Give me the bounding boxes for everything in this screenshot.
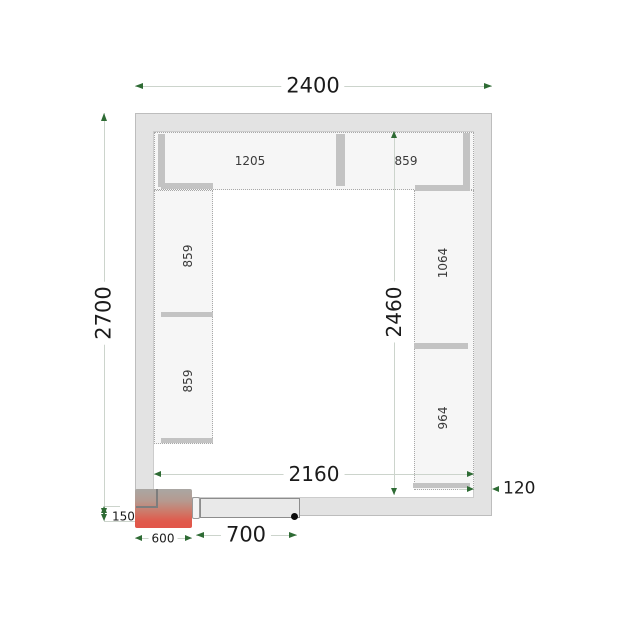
dim-arrow — [391, 131, 397, 138]
dim-label-inner-height: 2460 — [383, 282, 405, 343]
shelf-length-label: 859 — [395, 154, 418, 168]
shelf-endcap — [161, 183, 213, 189]
dim-arrow — [492, 486, 499, 492]
dim-arrow — [154, 471, 161, 477]
dim-arrow — [101, 113, 107, 121]
dim-arrow — [101, 514, 107, 521]
shelf-length-label: 859 — [181, 245, 195, 268]
shelf-top-row — [154, 132, 474, 190]
dim-arrow — [289, 532, 297, 538]
dim-line-wall-thickness — [459, 489, 467, 490]
dim-label-outer-width: 2400 — [281, 74, 344, 97]
door-frame-post — [192, 497, 200, 519]
wall-corner-line — [136, 506, 158, 508]
shelf-length-label: 964 — [436, 407, 450, 430]
shelf-length-label: 1064 — [436, 248, 450, 279]
dim-label-door-width: 700 — [221, 523, 271, 546]
dim-arrow — [467, 471, 474, 477]
shelf-length-label: 1205 — [235, 154, 266, 168]
dim-arrow — [101, 506, 107, 513]
dim-arrow — [185, 535, 192, 541]
dim-label-inner-width: 2160 — [284, 463, 345, 485]
shelf-endcap — [413, 483, 470, 488]
dim-arrow — [196, 532, 204, 538]
shelf-divider — [161, 312, 213, 317]
floor-plan-canvas: 1205 859 859 859 1064 964 2400 2700 2460… — [0, 0, 625, 625]
door-leaf — [200, 498, 300, 518]
dim-label-unit-offset: 150 — [112, 510, 135, 523]
dim-arrow — [135, 535, 142, 541]
shelf-endcap — [161, 438, 213, 443]
cooling-unit — [135, 489, 192, 528]
shelf-left-column — [154, 190, 213, 444]
shelf-endcap — [463, 133, 470, 187]
dim-label-wall-thickness: 120 — [503, 480, 535, 499]
shelf-divider — [414, 343, 468, 349]
door-hinge-dot — [291, 513, 298, 520]
dim-arrow — [391, 488, 397, 495]
shelf-endcap — [158, 134, 165, 187]
shelf-divider — [336, 134, 345, 186]
dim-arrow — [135, 83, 143, 89]
shelf-right-column — [414, 190, 474, 490]
dim-label-unit-width: 600 — [149, 532, 178, 545]
shelf-endcap — [415, 185, 470, 191]
shelf-length-label: 859 — [181, 370, 195, 393]
dim-label-outer-height: 2700 — [92, 281, 115, 344]
dim-arrow — [484, 83, 492, 89]
dim-arrow — [467, 486, 474, 492]
